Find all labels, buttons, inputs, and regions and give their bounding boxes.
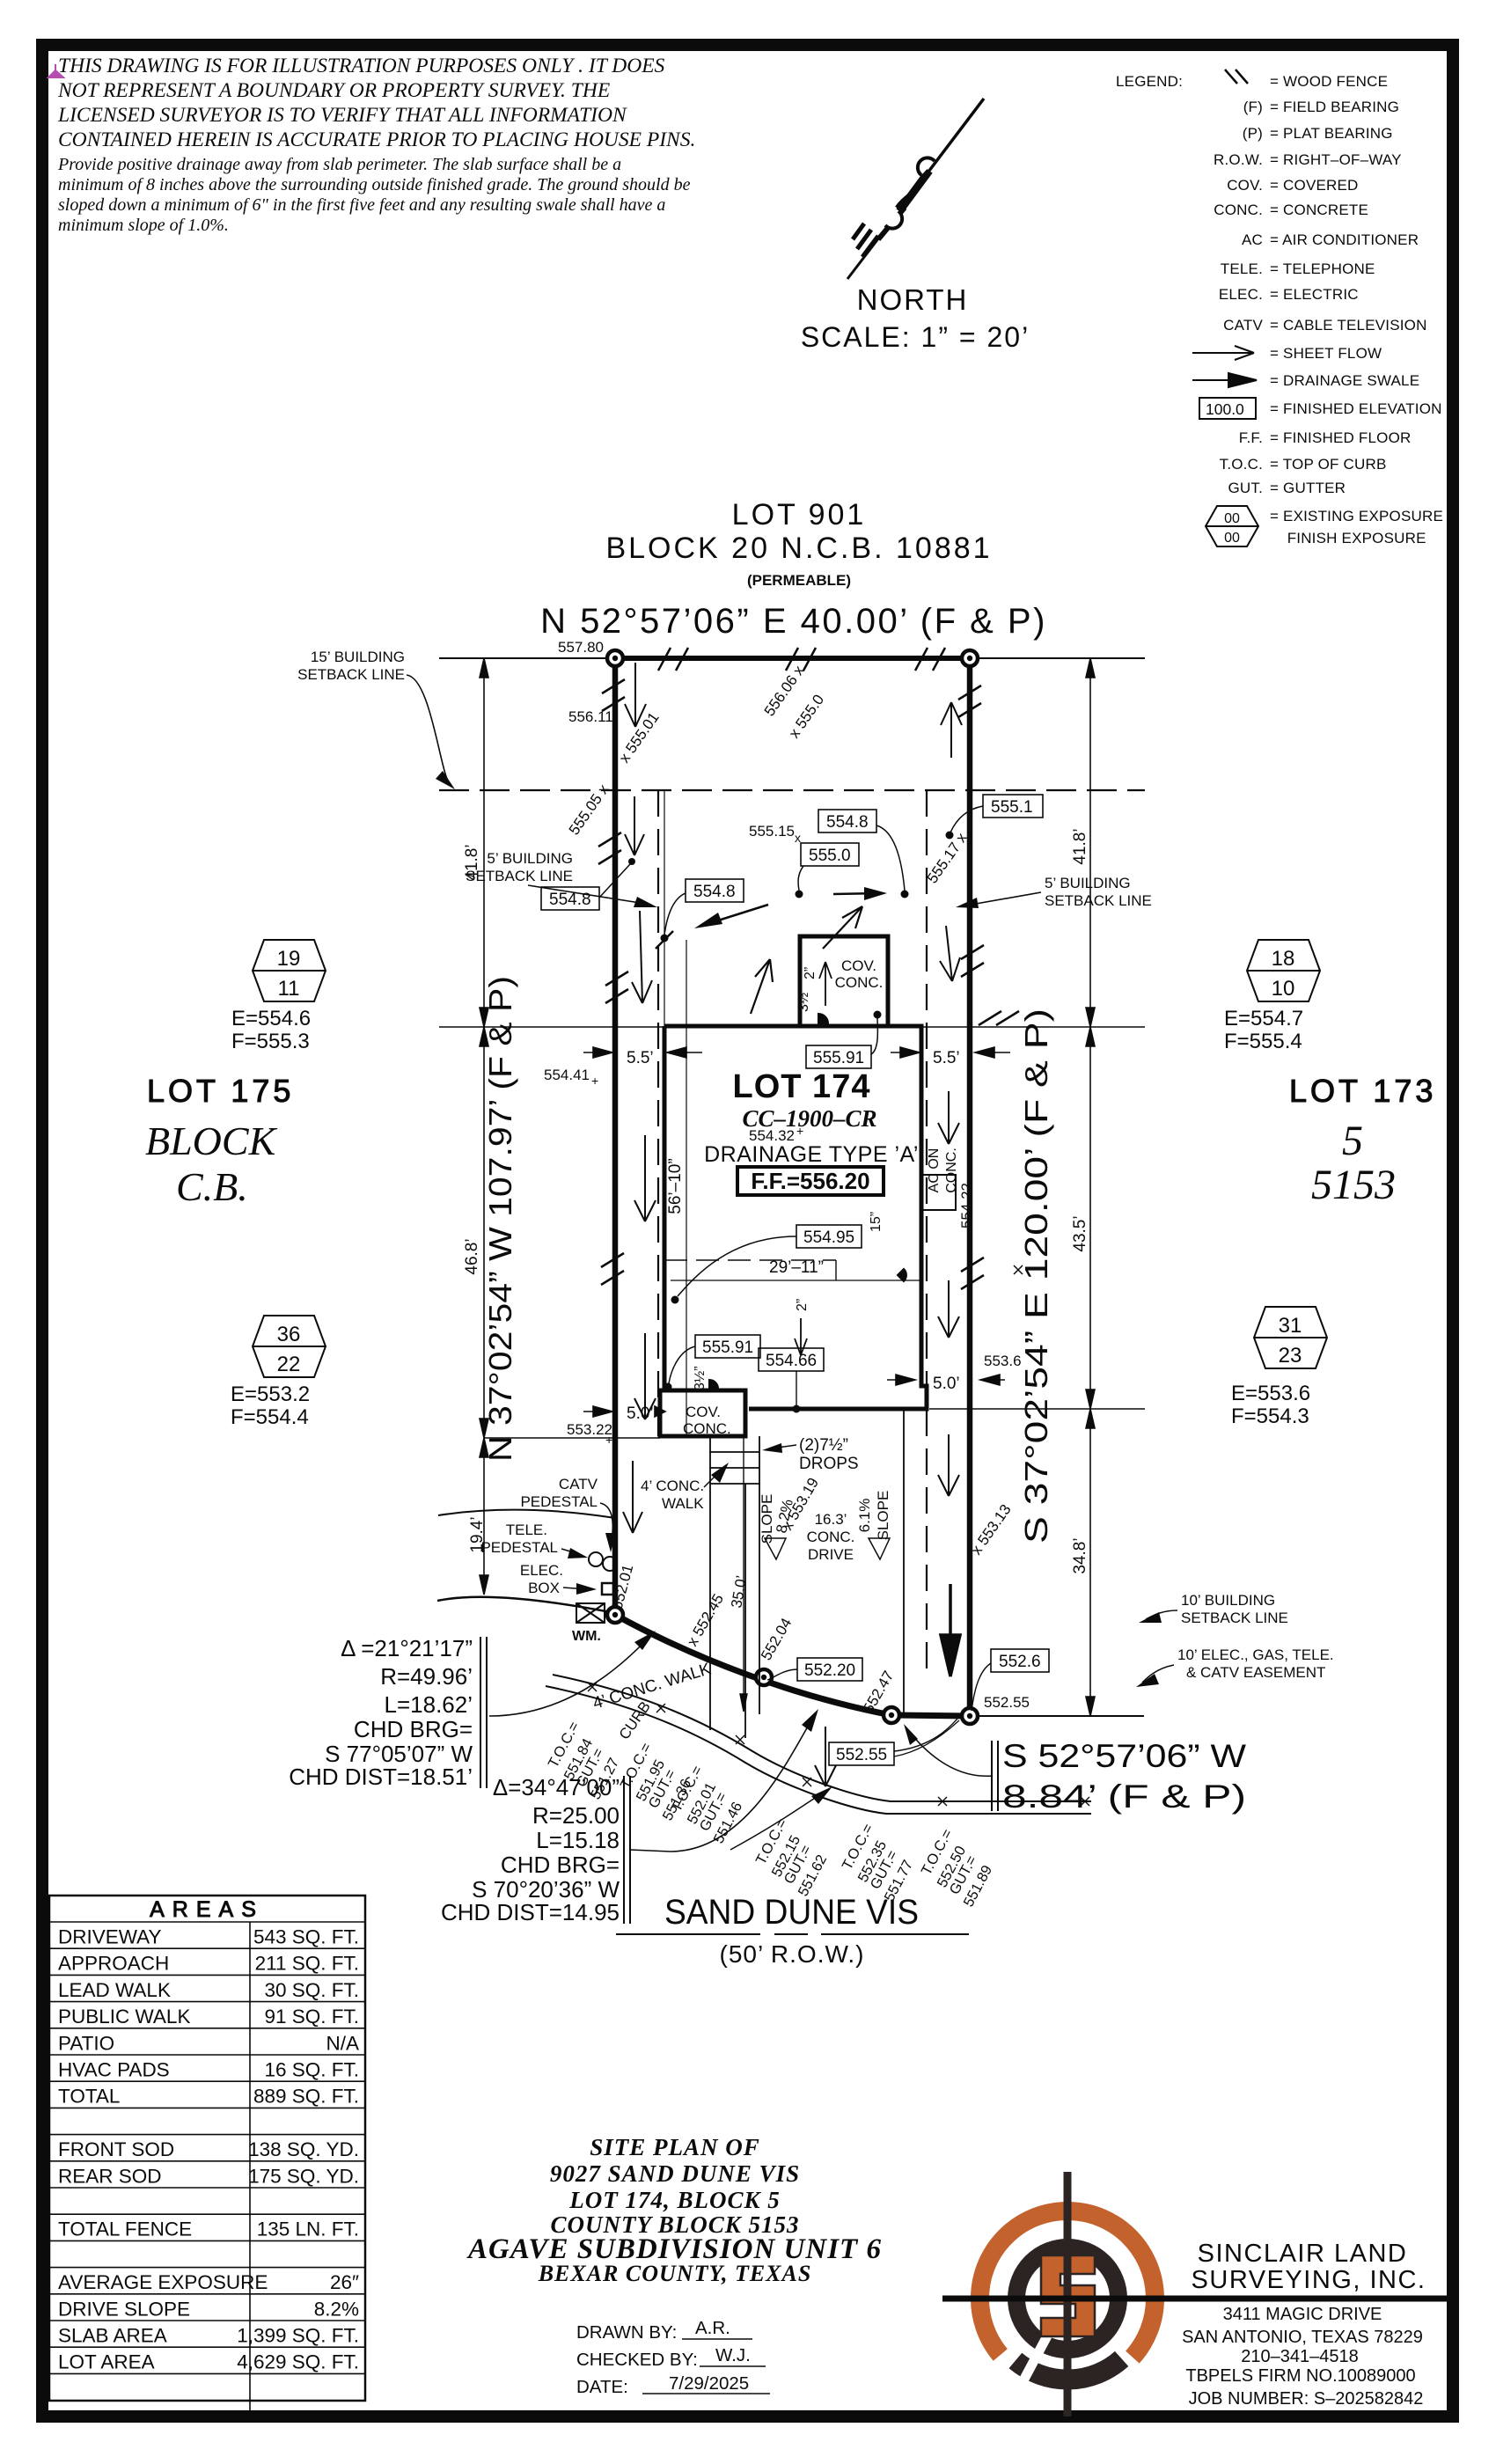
- svg-text:211 SQ. FT.: 211 SQ. FT.: [255, 1953, 359, 1975]
- svg-text:A.R.: A.R.: [695, 2318, 730, 2338]
- svg-text:552.6: 552.6: [999, 1653, 1041, 1671]
- svg-text:+: +: [605, 1433, 612, 1447]
- svg-text:555.91: 555.91: [702, 1338, 753, 1357]
- svg-text:(50’ R.O.W.): (50’ R.O.W.): [720, 1940, 865, 1968]
- svg-text:11: 11: [278, 977, 300, 1001]
- svg-text:ELEC.: ELEC.: [1219, 286, 1263, 303]
- svg-text:S 37°02’54” E 120.00’ (F: S 37°02’54” E 120.00’ (F & P): [1018, 1008, 1054, 1544]
- svg-text:DROPS: DROPS: [799, 1455, 859, 1473]
- svg-text:= PLAT BEARING: = PLAT BEARING: [1270, 125, 1393, 142]
- svg-text:555.15: 555.15: [749, 823, 795, 840]
- svg-text:F=555.4: F=555.4: [1224, 1030, 1302, 1053]
- svg-text:NORTH: NORTH: [857, 283, 969, 316]
- svg-text:135 LN. FT.: 135 LN. FT.: [257, 2218, 359, 2240]
- svg-text:AC ON: AC ON: [927, 1148, 942, 1193]
- svg-text:= COVERED: = COVERED: [1270, 177, 1359, 194]
- svg-text:= TOP OF CURB: = TOP OF CURB: [1270, 456, 1387, 473]
- svg-text:R=25.00: R=25.00: [532, 1802, 620, 1829]
- svg-text:CONC.: CONC.: [835, 974, 884, 991]
- svg-text:= CABLE TELEVISION: = CABLE TELEVISION: [1270, 317, 1427, 334]
- svg-text:= FIELD BEARING: = FIELD BEARING: [1270, 99, 1399, 115]
- svg-text:FINISH EXPOSURE: FINISH EXPOSURE: [1270, 530, 1426, 546]
- svg-text:(F): (F): [1243, 99, 1263, 115]
- svg-text:COV.: COV.: [841, 957, 876, 974]
- svg-text:5.5’: 5.5’: [627, 1049, 654, 1067]
- svg-text:L=18.62’: L=18.62’: [385, 1691, 473, 1718]
- svg-text:DRAWN BY:: DRAWN BY:: [576, 2322, 677, 2343]
- svg-text:Δ =21°21’17”: Δ =21°21’17”: [341, 1635, 473, 1661]
- svg-text:CHD DIST=14.95: CHD DIST=14.95: [441, 1899, 620, 1925]
- svg-text:554.22: 554.22: [958, 1183, 975, 1228]
- svg-text:552.55: 552.55: [836, 1746, 887, 1764]
- svg-text:FRONT SOD: FRONT SOD: [58, 2138, 174, 2160]
- svg-text:5.5’: 5.5’: [933, 1049, 960, 1067]
- svg-text:23: 23: [1279, 1344, 1302, 1368]
- svg-text:6.1%: 6.1%: [856, 1499, 873, 1533]
- svg-text:BEXAR COUNTY, TEXAS: BEXAR COUNTY, TEXAS: [538, 2261, 812, 2286]
- svg-text:554.8: 554.8: [693, 883, 736, 901]
- svg-text:56’–10”: 56’–10”: [666, 1158, 685, 1214]
- svg-text:543 SQ. FT.: 543 SQ. FT.: [253, 1926, 359, 1948]
- svg-text:N 37°02’54” W 107.97’ (F: N 37°02’54” W 107.97’ (F & P): [482, 976, 518, 1462]
- svg-text:CONC.: CONC.: [1214, 202, 1263, 218]
- svg-text:PATIO: PATIO: [58, 2032, 114, 2054]
- svg-text:SITE PLAN OF: SITE PLAN OF: [590, 2134, 760, 2160]
- svg-text:SCALE: 1” = 20’: SCALE: 1” = 20’: [801, 321, 1030, 353]
- svg-text:2”: 2”: [803, 967, 818, 979]
- svg-text:4’ CONC.: 4’ CONC.: [641, 1478, 704, 1494]
- svg-text:CONTAINED HEREIN IS ACCURATE P: CONTAINED HEREIN IS ACCURATE PRIOR TO PL…: [58, 128, 695, 151]
- svg-text:(PERMEABLE): (PERMEABLE): [747, 572, 851, 589]
- svg-text:NOT REPRESENT A BOUNDARY OR PR: NOT REPRESENT A BOUNDARY OR PROPERTY SUR…: [57, 79, 610, 102]
- svg-text:5’ BUILDING: 5’ BUILDING: [487, 850, 573, 867]
- svg-text:554.8: 554.8: [549, 891, 591, 909]
- svg-text:2”: 2”: [795, 1299, 810, 1311]
- svg-text:WM.: WM.: [572, 1629, 601, 1644]
- svg-text:LOT 901: LOT 901: [732, 498, 867, 532]
- svg-text:COV.: COV.: [686, 1404, 721, 1420]
- svg-text:DATE:: DATE:: [576, 2377, 628, 2397]
- svg-text:= AIR CONDITIONER: = AIR CONDITIONER: [1270, 231, 1419, 248]
- svg-text:Provide positive drainage away: Provide positive drainage away from slab…: [57, 155, 621, 174]
- svg-text:43.5’: 43.5’: [1071, 1215, 1089, 1251]
- svg-text:E=553.2: E=553.2: [231, 1382, 310, 1406]
- svg-text:ELEC.: ELEC.: [520, 1562, 563, 1579]
- svg-text:552.55: 552.55: [984, 1694, 1030, 1711]
- svg-text:554.66: 554.66: [766, 1352, 817, 1370]
- svg-text:AC: AC: [1242, 231, 1263, 248]
- svg-text:556.11: 556.11: [568, 708, 613, 725]
- svg-text:CHD BRG=: CHD BRG=: [501, 1852, 620, 1878]
- svg-text:F=554.3: F=554.3: [1231, 1404, 1309, 1428]
- svg-text:minimum slope of 1.0%.: minimum slope of 1.0%.: [58, 216, 229, 235]
- svg-text:= DRAINAGE SWALE: = DRAINAGE SWALE: [1270, 372, 1419, 389]
- svg-text:552.20: 552.20: [804, 1661, 855, 1680]
- svg-text:DRIVE SLOPE: DRIVE SLOPE: [58, 2298, 190, 2320]
- svg-text:HVAC PADS: HVAC PADS: [58, 2059, 170, 2081]
- svg-text:7/29/2025: 7/29/2025: [669, 2373, 749, 2394]
- svg-text:CONC.: CONC.: [683, 1420, 731, 1437]
- svg-text:SAN ANTONIO, TEXAS 78229: SAN ANTONIO, TEXAS 78229: [1182, 2328, 1423, 2347]
- svg-text:555.1: 555.1: [991, 798, 1033, 817]
- svg-text:AVERAGE EXPOSURE: AVERAGE EXPOSURE: [58, 2271, 268, 2293]
- svg-text:91 SQ. FT.: 91 SQ. FT.: [264, 2006, 359, 2028]
- svg-text:SLAB AREA: SLAB AREA: [58, 2325, 167, 2347]
- svg-text:R.O.W.: R.O.W.: [1214, 151, 1263, 168]
- svg-text:138 SQ. YD.: 138 SQ. YD.: [248, 2138, 359, 2160]
- svg-text:AREAS: AREAS: [150, 1897, 264, 1922]
- svg-text:CATV: CATV: [559, 1476, 598, 1492]
- svg-text:N 52°57’06” E 40.00’ (F &: N 52°57’06” E 40.00’ (F & P): [540, 602, 1047, 641]
- svg-text:F=554.4: F=554.4: [231, 1405, 309, 1429]
- svg-text:5.0’: 5.0’: [933, 1375, 960, 1393]
- svg-text:= GUTTER: = GUTTER: [1270, 480, 1346, 496]
- svg-text:= SHEET FLOW: = SHEET FLOW: [1270, 345, 1382, 362]
- svg-text:SETBACK LINE: SETBACK LINE: [1181, 1610, 1288, 1626]
- svg-text:SETBACK LINE: SETBACK LINE: [466, 868, 573, 884]
- svg-text:GUT.: GUT.: [1228, 480, 1263, 496]
- svg-text:LOT AREA: LOT AREA: [58, 2351, 155, 2373]
- svg-text:3½”: 3½”: [693, 1366, 708, 1390]
- svg-text:REAR SOD: REAR SOD: [58, 2165, 162, 2187]
- svg-text:COV.: COV.: [1227, 177, 1263, 194]
- svg-text:554.95: 554.95: [803, 1228, 854, 1247]
- svg-text:E=553.6: E=553.6: [1231, 1382, 1310, 1405]
- svg-text:5153: 5153: [1311, 1162, 1396, 1208]
- svg-text:F.F.=556.20: F.F.=556.20: [751, 1168, 869, 1194]
- svg-text:T.O.C.: T.O.C.: [1220, 456, 1263, 473]
- svg-text:= TELEPHONE: = TELEPHONE: [1270, 260, 1375, 277]
- svg-text:TBPELS FIRM NO.10089000: TBPELS FIRM NO.10089000: [1185, 2366, 1415, 2386]
- svg-text:889 SQ. FT.: 889 SQ. FT.: [253, 2086, 359, 2108]
- svg-text:SINCLAIR LAND: SINCLAIR LAND: [1198, 2240, 1408, 2268]
- svg-text:41.8’: 41.8’: [1071, 828, 1089, 864]
- svg-text:L=15.18: L=15.18: [536, 1827, 620, 1853]
- svg-text:TOTAL FENCE: TOTAL FENCE: [58, 2218, 192, 2240]
- svg-text:THIS DRAWING IS FOR ILLUSTRATI: THIS DRAWING IS FOR ILLUSTRATION PURPOSE…: [58, 55, 665, 77]
- svg-text:BOX: BOX: [528, 1580, 560, 1596]
- svg-text:CATV: CATV: [1223, 317, 1263, 334]
- svg-text:PEDESTAL: PEDESTAL: [480, 1539, 558, 1556]
- svg-text:(P): (P): [1243, 125, 1263, 142]
- svg-text:= FINISHED ELEVATION: = FINISHED ELEVATION: [1270, 400, 1442, 417]
- svg-text:N/A: N/A: [326, 2032, 359, 2054]
- svg-text:10’ BUILDING: 10’ BUILDING: [1181, 1592, 1275, 1609]
- svg-text:CHD BRG=: CHD BRG=: [354, 1716, 473, 1742]
- svg-text:1,399 SQ. FT.: 1,399 SQ. FT.: [237, 2325, 359, 2347]
- svg-text:C.B.: C.B.: [176, 1164, 248, 1209]
- svg-text:9027 SAND DUNE VIS: 9027 SAND DUNE VIS: [550, 2160, 800, 2187]
- svg-text:555.91: 555.91: [813, 1049, 864, 1067]
- svg-text:= ELECTRIC: = ELECTRIC: [1270, 286, 1359, 303]
- svg-text:100.0: 100.0: [1206, 400, 1244, 418]
- svg-text:175 SQ. YD.: 175 SQ. YD.: [248, 2165, 359, 2187]
- svg-text:R=49.96’: R=49.96’: [380, 1663, 473, 1690]
- svg-text:18: 18: [1272, 947, 1295, 971]
- svg-text:29’–11”: 29’–11”: [769, 1258, 824, 1277]
- svg-text:sloped down a minimum of 6" in: sloped down a minimum of 6" in the first…: [58, 195, 665, 215]
- svg-text:CHD DIST=18.51’: CHD DIST=18.51’: [289, 1764, 473, 1790]
- svg-text:BLOCK: BLOCK: [145, 1118, 278, 1163]
- svg-text:LOT 173: LOT 173: [1289, 1073, 1436, 1109]
- svg-text:SLOPE: SLOPE: [875, 1491, 891, 1541]
- svg-text:30 SQ. FT.: 30 SQ. FT.: [264, 1979, 359, 2001]
- svg-text:00: 00: [1224, 511, 1240, 526]
- svg-text:34.8’: 34.8’: [1071, 1537, 1089, 1573]
- svg-text:SETBACK LINE: SETBACK LINE: [1045, 892, 1152, 909]
- svg-text:22: 22: [277, 1353, 301, 1376]
- svg-text:PEDESTAL: PEDESTAL: [520, 1493, 598, 1510]
- svg-text:210–341–4518: 210–341–4518: [1241, 2347, 1358, 2366]
- svg-text:LOT 175: LOT 175: [147, 1073, 294, 1109]
- svg-text:WALK: WALK: [662, 1495, 704, 1512]
- svg-text:8.84’ (F & P): 8.84’ (F & P): [1002, 1778, 1246, 1815]
- svg-text:SAND DUNE VIS: SAND DUNE VIS: [664, 1893, 919, 1932]
- svg-text:= EXISTING EXPOSURE: = EXISTING EXPOSURE: [1270, 508, 1443, 524]
- svg-text:= FINISHED FLOOR: = FINISHED FLOOR: [1270, 429, 1411, 446]
- svg-text:5: 5: [1342, 1118, 1363, 1164]
- svg-text:31: 31: [1279, 1314, 1302, 1338]
- svg-text:BLOCK 20 N.C.B. 10881: BLOCK 20 N.C.B. 10881: [605, 532, 992, 565]
- svg-text:(2)7½”: (2)7½”: [799, 1436, 848, 1455]
- svg-text:00: 00: [1224, 531, 1240, 546]
- svg-text:E=554.6: E=554.6: [231, 1007, 311, 1030]
- svg-text:JOB NUMBER: S–202582842: JOB NUMBER: S–202582842: [1189, 2389, 1424, 2409]
- svg-text:& CATV EASEMENT: & CATV EASEMENT: [1186, 1664, 1325, 1681]
- svg-text:10: 10: [1272, 977, 1295, 1001]
- svg-text:LOT 174: LOT 174: [733, 1068, 871, 1105]
- svg-text:S 52°57’06” W: S 52°57’06” W: [1002, 1738, 1246, 1774]
- svg-text:SETBACK LINE: SETBACK LINE: [297, 666, 405, 683]
- svg-text:minimum of 8 inches above the: minimum of 8 inches above the surroundin…: [58, 175, 691, 194]
- svg-text:LOT 174, BLOCK 5: LOT 174, BLOCK 5: [568, 2187, 781, 2213]
- svg-text:16 SQ. FT.: 16 SQ. FT.: [264, 2059, 359, 2081]
- svg-text:CONC.: CONC.: [807, 1529, 855, 1545]
- svg-text:555.0: 555.0: [809, 847, 851, 865]
- svg-text:SLOPE: SLOPE: [759, 1494, 775, 1544]
- svg-text:3½”: 3½”: [796, 987, 811, 1012]
- svg-text:DRIVE: DRIVE: [808, 1546, 854, 1563]
- svg-text:= RIGHT–OF–WAY: = RIGHT–OF–WAY: [1270, 151, 1402, 168]
- svg-text:CONC.: CONC.: [944, 1148, 959, 1193]
- svg-text:x: x: [795, 831, 801, 845]
- svg-text:= CONCRETE: = CONCRETE: [1270, 202, 1368, 218]
- svg-text:= WOOD FENCE: = WOOD FENCE: [1270, 73, 1388, 90]
- svg-text:LEAD WALK: LEAD WALK: [58, 1979, 171, 2001]
- svg-text:5’ BUILDING: 5’ BUILDING: [1045, 875, 1131, 891]
- svg-text:36: 36: [277, 1323, 301, 1346]
- svg-text:E=554.7: E=554.7: [1224, 1007, 1303, 1030]
- svg-text:8.2%: 8.2%: [314, 2298, 359, 2320]
- svg-text:PUBLIC WALK: PUBLIC WALK: [58, 2006, 190, 2028]
- svg-text:557.80: 557.80: [558, 639, 604, 656]
- svg-text:TELE.: TELE.: [1221, 260, 1263, 277]
- svg-text:DRIVEWAY: DRIVEWAY: [58, 1926, 162, 1948]
- svg-text:3411 MAGIC DRIVE: 3411 MAGIC DRIVE: [1223, 2305, 1382, 2324]
- svg-text:15’ BUILDING: 15’ BUILDING: [311, 649, 405, 665]
- svg-text:+: +: [796, 1124, 803, 1138]
- svg-text:5.0’: 5.0’: [627, 1404, 654, 1423]
- svg-text:F.F.: F.F.: [1239, 429, 1263, 446]
- svg-text:+: +: [591, 1074, 598, 1088]
- svg-text:W.J.: W.J.: [715, 2345, 751, 2365]
- svg-text:46.8’: 46.8’: [463, 1238, 481, 1274]
- svg-text:TELE.: TELE.: [506, 1522, 547, 1538]
- svg-text:26″: 26″: [330, 2271, 359, 2293]
- svg-text:LICENSED SURVEYOR IS TO VERIFY: LICENSED SURVEYOR IS TO VERIFY THAT ALL …: [57, 104, 627, 127]
- svg-text:15”: 15”: [869, 1212, 884, 1232]
- svg-text:554.8: 554.8: [826, 813, 869, 832]
- svg-text:19: 19: [277, 947, 301, 971]
- svg-text:4,629 SQ. FT.: 4,629 SQ. FT.: [237, 2351, 359, 2373]
- svg-text:10’ ELEC., GAS, TELE.: 10’ ELEC., GAS, TELE.: [1177, 1646, 1334, 1663]
- svg-text:CHECKED BY:: CHECKED BY:: [576, 2350, 698, 2370]
- svg-text:APPROACH: APPROACH: [58, 1953, 169, 1975]
- svg-text:SURVEYING, INC.: SURVEYING, INC.: [1192, 2266, 1426, 2294]
- svg-text:DRAINAGE TYPE ’A’: DRAINAGE TYPE ’A’: [704, 1142, 919, 1167]
- svg-text:LEGEND:: LEGEND:: [1116, 73, 1183, 90]
- svg-text:F=555.3: F=555.3: [231, 1030, 310, 1053]
- svg-text:554.41: 554.41: [544, 1067, 590, 1083]
- svg-text:16.3’: 16.3’: [815, 1511, 847, 1528]
- svg-text:553.6: 553.6: [984, 1353, 1022, 1369]
- svg-text:TOTAL: TOTAL: [58, 2086, 120, 2108]
